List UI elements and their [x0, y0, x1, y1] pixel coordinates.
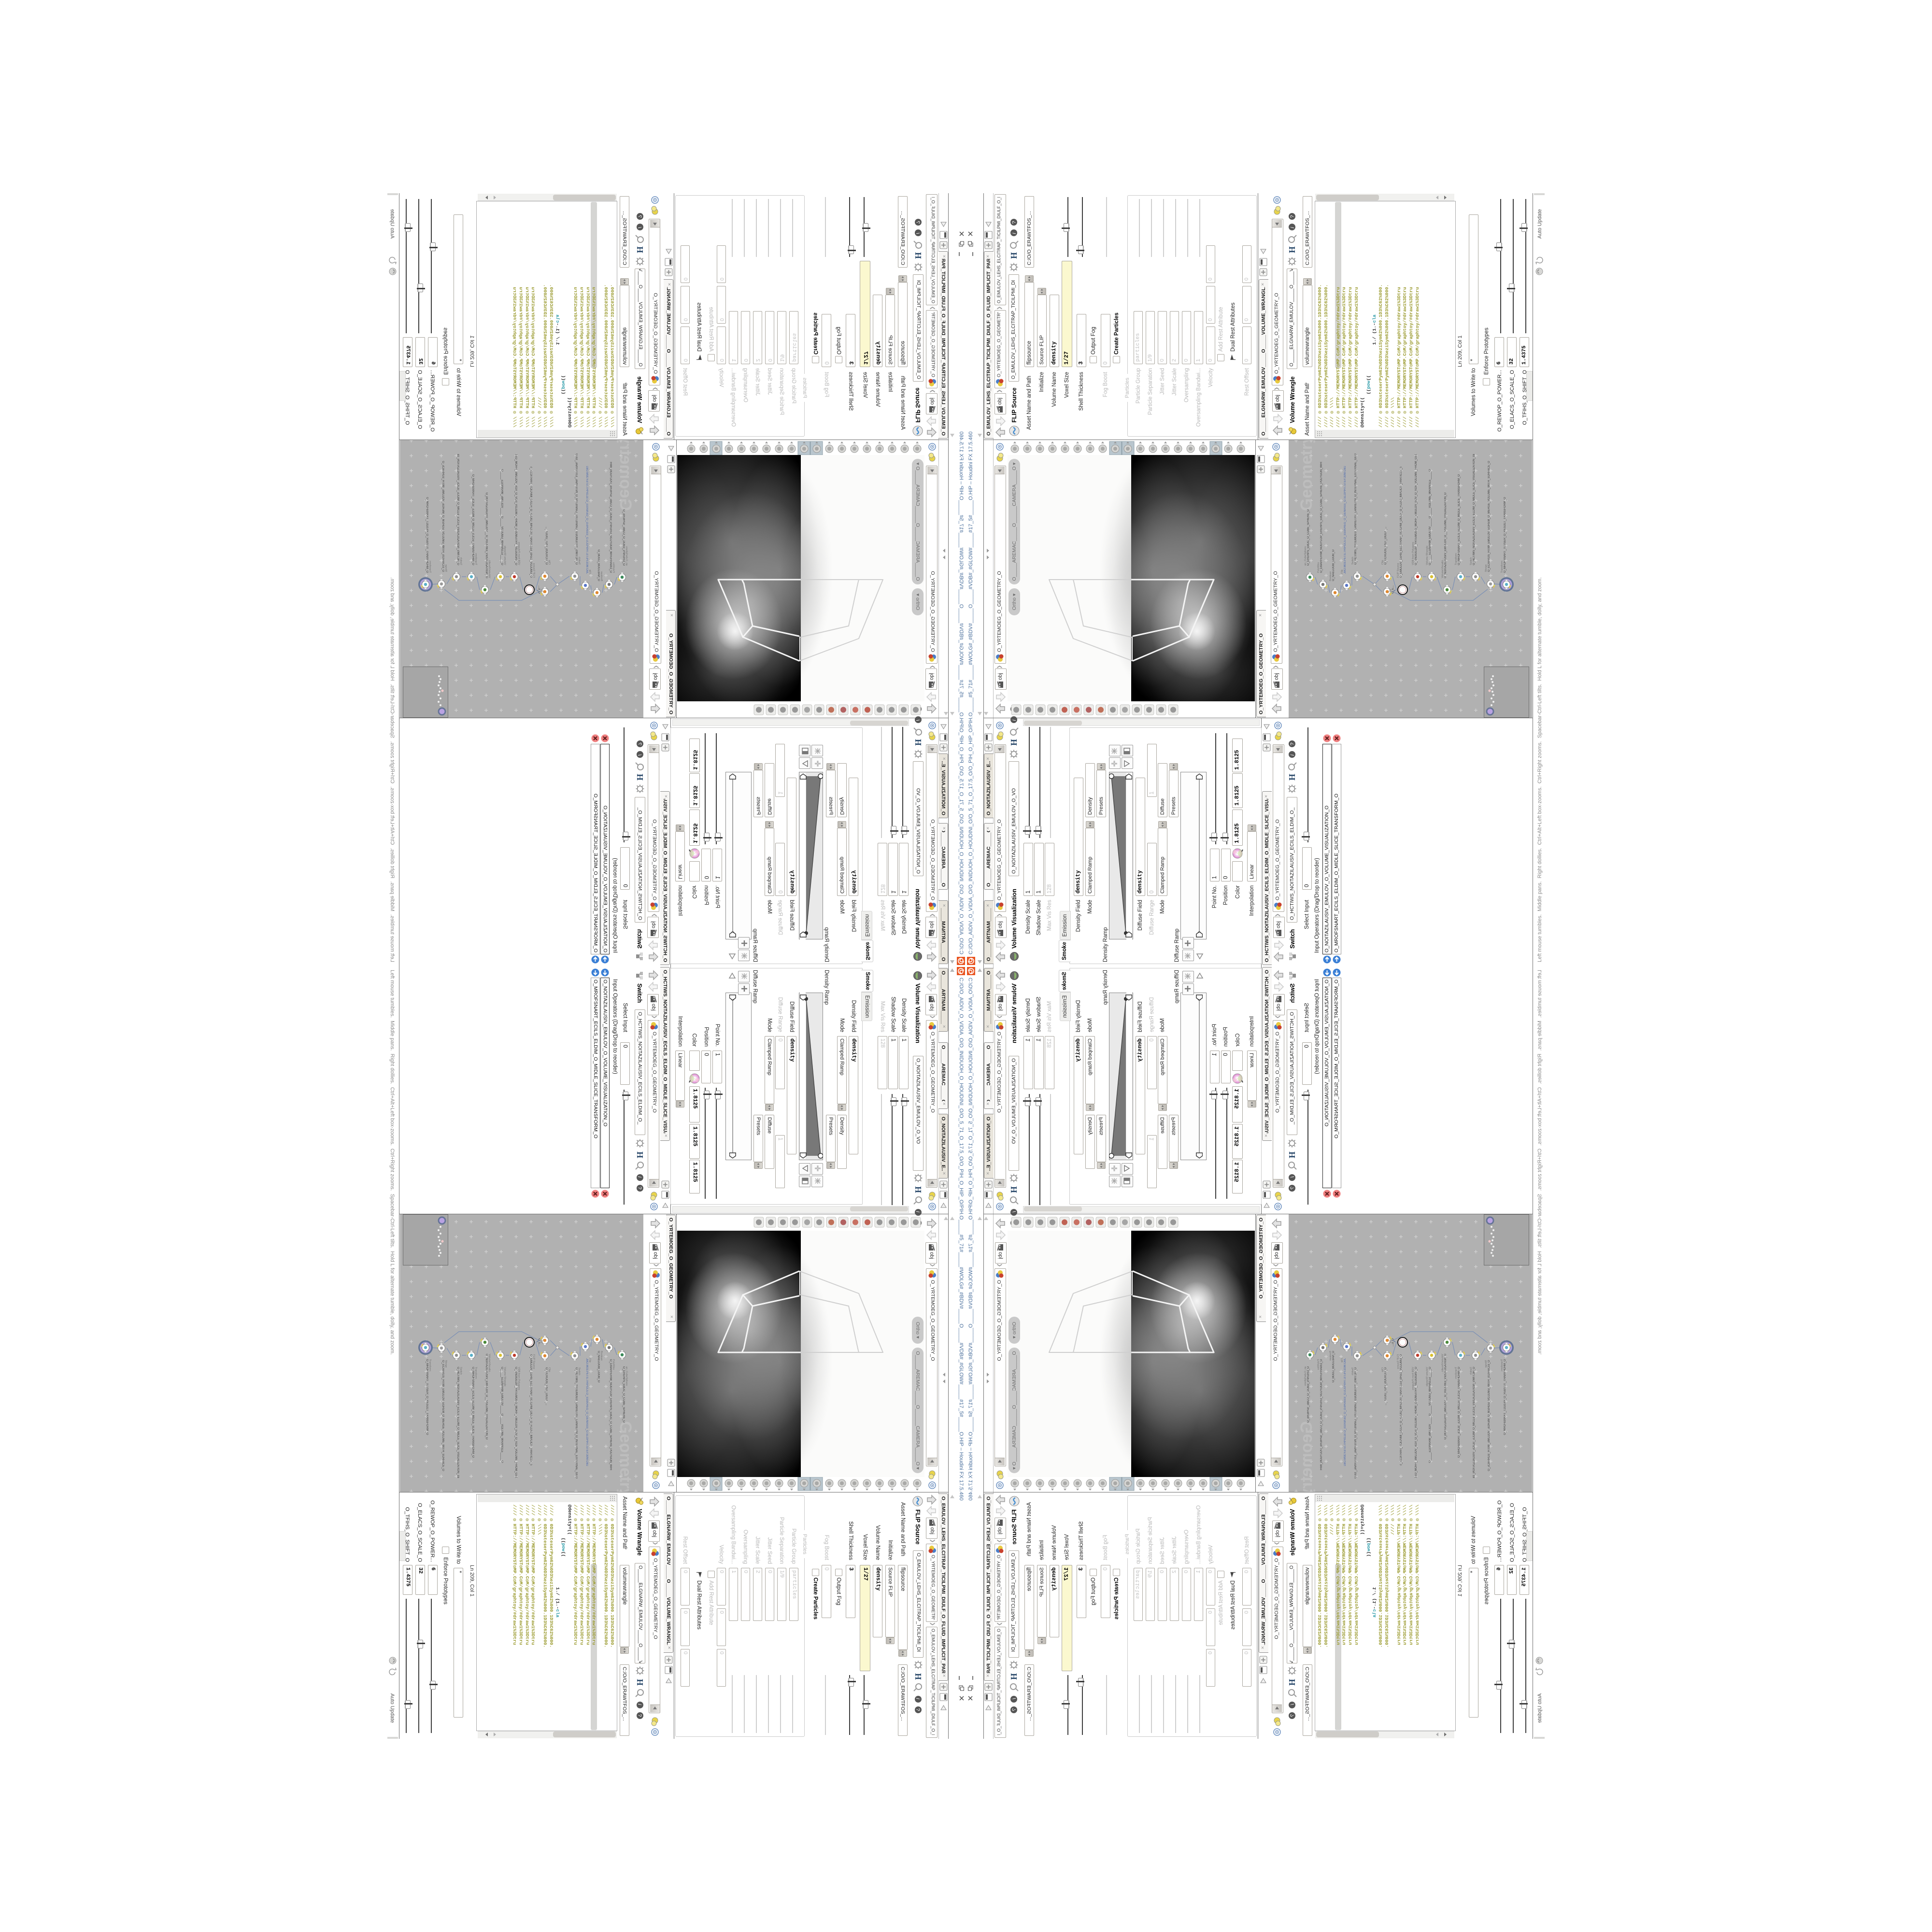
svg-text:?: ?	[1290, 215, 1295, 218]
svg-text:H: H	[1287, 774, 1297, 781]
svg-text:i: i	[915, 233, 921, 234]
svg-text:H: H	[1287, 1679, 1297, 1686]
svg-text:?: ?	[915, 221, 921, 224]
svg-text:i: i	[637, 754, 642, 756]
svg-text:H: H	[1287, 246, 1297, 253]
svg-text:H: H	[913, 252, 923, 259]
svg-text:?: ?	[637, 1187, 642, 1190]
svg-text:?: ?	[637, 1714, 642, 1717]
svg-text:H: H	[1009, 252, 1019, 259]
svg-text:H: H	[635, 1679, 645, 1686]
svg-text:H: H	[1009, 1673, 1019, 1680]
svg-text:H: H	[635, 774, 645, 781]
svg-text:i: i	[1290, 227, 1295, 228]
svg-text:i: i	[637, 227, 642, 228]
svg-text:?: ?	[915, 1708, 921, 1711]
svg-text:?: ?	[1290, 1714, 1295, 1717]
svg-text:i: i	[915, 720, 921, 721]
svg-text:?: ?	[637, 215, 642, 218]
svg-text:H: H	[635, 246, 645, 253]
svg-text:H: H	[913, 739, 923, 746]
svg-text:H: H	[913, 1186, 923, 1193]
svg-text:?: ?	[1011, 1708, 1017, 1711]
svg-text:?: ?	[1290, 1187, 1295, 1190]
svg-text:H: H	[913, 1673, 923, 1680]
svg-text:i: i	[1011, 233, 1017, 234]
svg-text:H: H	[1009, 1186, 1019, 1193]
svg-text:H: H	[1009, 739, 1019, 746]
svg-text:?: ?	[1011, 221, 1017, 224]
svg-text:?: ?	[1290, 742, 1295, 745]
svg-text:H: H	[635, 1151, 645, 1158]
svg-text:i: i	[1290, 754, 1295, 756]
svg-text:?: ?	[637, 742, 642, 745]
svg-text:i: i	[1011, 720, 1017, 721]
svg-text:H: H	[1287, 1151, 1297, 1158]
